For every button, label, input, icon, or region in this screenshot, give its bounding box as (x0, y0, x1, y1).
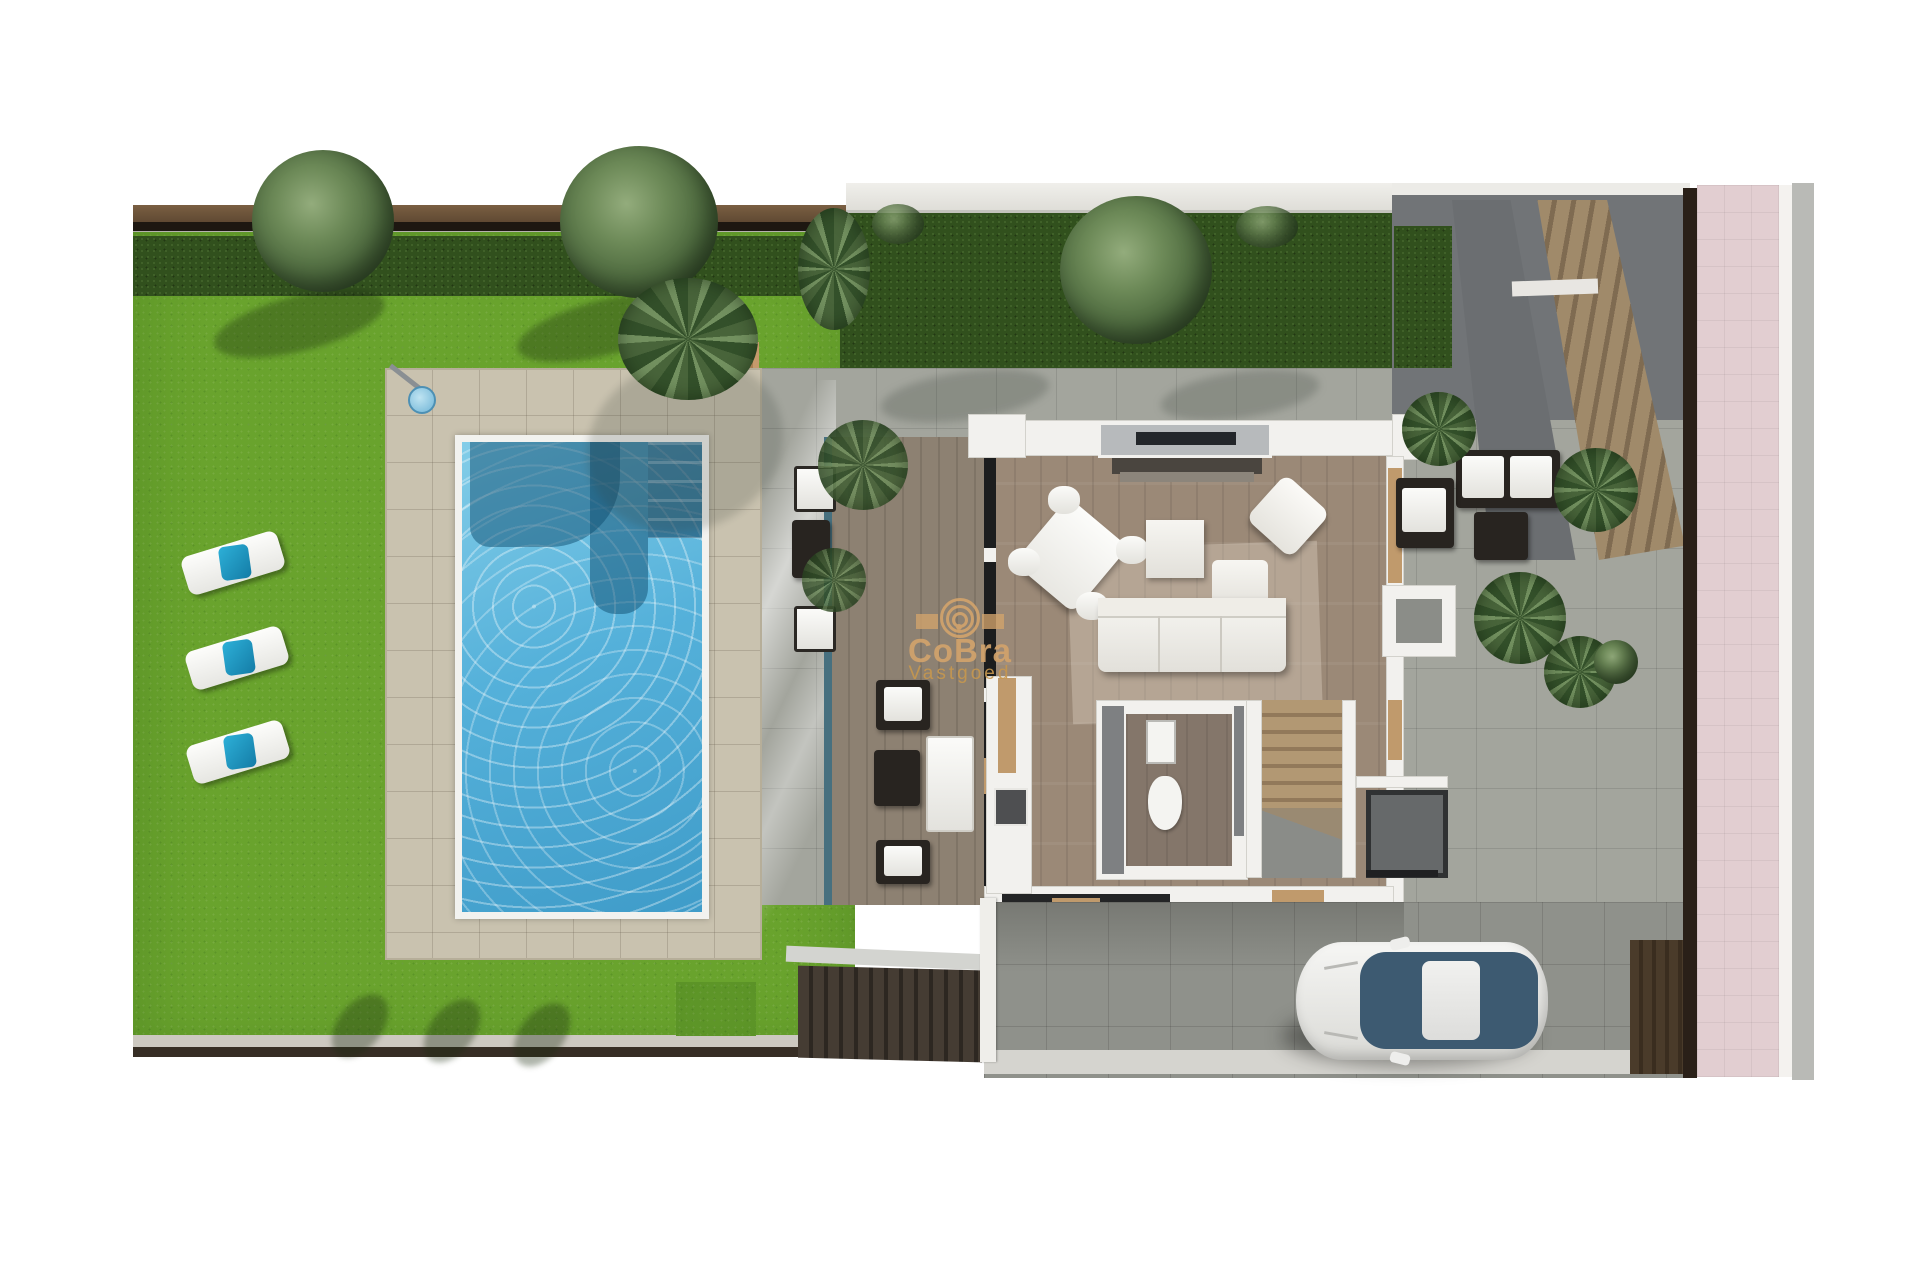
sofa (1098, 598, 1286, 672)
garden-tree (252, 150, 394, 292)
skylight-strip (1512, 279, 1598, 297)
window-glass-slit (1136, 432, 1236, 445)
dining-chair (1008, 548, 1040, 576)
road-grey-strip (1792, 183, 1814, 1080)
watermark-cobra-vastgoed: CoBra Vastgoed (850, 598, 1070, 684)
tv-shelf (1120, 472, 1254, 482)
white-pillar (980, 898, 996, 1062)
wall-corner-topleft (968, 414, 1026, 458)
basement-stairs (798, 966, 982, 1063)
kitchen-cooktop (994, 788, 1028, 826)
wall-jog-core (1396, 599, 1442, 643)
terrace-palm-plant (818, 420, 908, 510)
sofa-cushion (1510, 456, 1552, 498)
spiral-icon (940, 598, 980, 638)
logo-bar (982, 614, 1004, 629)
watermark-subtitle: Vastgoed (850, 664, 1070, 684)
round-bush (1594, 640, 1638, 684)
poolside-chair (794, 606, 836, 652)
lounger-pillow (218, 543, 252, 581)
palm-plant (1554, 448, 1638, 532)
hedge-creeper (872, 204, 924, 244)
entry-door-line (1366, 870, 1438, 877)
toilet (1148, 776, 1182, 830)
chair-cushion (884, 687, 922, 721)
side-grass-patch (676, 982, 756, 1036)
terrace-side-table (874, 750, 920, 806)
sofa-seam (1220, 616, 1222, 672)
kitchen-tall-cabinet (998, 678, 1016, 773)
terrace-armchair (876, 680, 930, 730)
bathroom-wall-core (1102, 706, 1124, 874)
garden-hedge-top (133, 236, 855, 296)
dining-chair (1116, 536, 1148, 564)
palm-plant (1402, 392, 1476, 466)
garden-tree (1060, 196, 1212, 344)
entry-wall (1356, 776, 1448, 788)
courtyard-hedge (1394, 226, 1452, 368)
pink-pavement (1697, 185, 1779, 1077)
pavement-white-strip (1779, 185, 1792, 1077)
car-roof (1422, 961, 1480, 1040)
entry-mat (1366, 790, 1448, 878)
floorplan-render: CoBra Vastgoed (0, 0, 1920, 1280)
chair-cushion (884, 846, 922, 876)
car (1296, 942, 1548, 1060)
pool-palm (618, 278, 758, 400)
sofa-seam (1158, 616, 1160, 672)
hedge-creeper (1236, 206, 1298, 248)
garden-tree (560, 146, 718, 298)
bathroom-wall-core (1234, 706, 1244, 836)
curb-bottom (133, 1047, 807, 1057)
stair-wall (1342, 700, 1356, 878)
terrace-armchair (876, 840, 930, 884)
lounger-pillow (223, 732, 257, 770)
cobra-logo-icon (918, 598, 1002, 638)
sofa-cushion (1402, 488, 1446, 532)
neighbor-roof-band-right (1392, 183, 1690, 195)
wall-wood-column (1388, 700, 1402, 760)
sofa-cushion (1462, 456, 1504, 498)
interior-stairs (1262, 700, 1342, 810)
outdoor-coffee-table (1474, 512, 1528, 560)
door-mullion (984, 548, 996, 562)
stair-wall (1246, 700, 1262, 878)
garden-palm (798, 208, 870, 330)
outdoor-shower-head (408, 386, 436, 414)
stair-landing (1262, 808, 1342, 878)
outdoor-sofa-back (1456, 450, 1560, 508)
sofa-back (1098, 598, 1286, 618)
washbasin (1146, 720, 1176, 764)
outdoor-sofa-side (1396, 478, 1454, 548)
coffee-table (1146, 520, 1204, 578)
watermark-brand: CoBra (850, 638, 1070, 664)
boundary-wall-dark (1683, 188, 1697, 1078)
logo-bar (916, 614, 938, 629)
terrace-daybed (926, 736, 974, 832)
dining-chair (1048, 486, 1080, 514)
lounger-pillow (222, 638, 256, 676)
